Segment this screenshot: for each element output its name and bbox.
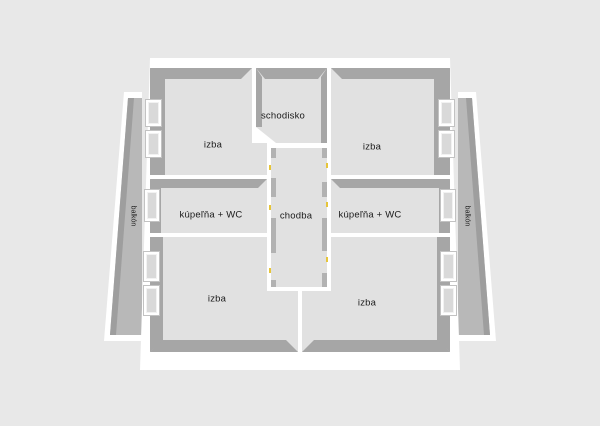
floorplan-canvas: balkón balkón [0, 0, 600, 426]
door-hinge-icon [326, 163, 328, 168]
room-label-izba-top-right: izba [363, 142, 381, 153]
wall-shade [150, 68, 252, 79]
wall-shade [331, 179, 450, 188]
corridor-wall-segment [322, 273, 327, 287]
corridor-wall-segment [271, 178, 276, 197]
window [438, 130, 455, 158]
room-label-kupelna-wc-right: kúpeľňa + WC [339, 210, 402, 221]
window-pane [147, 192, 157, 219]
window-pane [441, 102, 452, 124]
window [145, 99, 162, 127]
door-hinge-icon [269, 205, 271, 210]
room-schodisko [256, 68, 327, 143]
corridor-wall-segment [322, 148, 327, 158]
window-pane [146, 288, 157, 313]
wall-shade [302, 340, 450, 352]
room-izba-top-left [150, 68, 267, 175]
corridor-wall-segment [271, 148, 276, 158]
room-label-izba-bottom-right: izba [358, 298, 376, 309]
window-pane [443, 192, 453, 219]
window [143, 285, 160, 316]
wall-shade [150, 179, 267, 188]
wall-shade [256, 68, 327, 79]
window [143, 251, 160, 282]
balcony-right: balkón [458, 92, 496, 341]
door-hinge-icon [326, 202, 328, 207]
window [440, 285, 457, 316]
window-pane [148, 102, 159, 124]
window-pane [443, 254, 454, 279]
window [440, 189, 456, 222]
corridor-wall-segment [271, 218, 276, 253]
balcony-right-label: balkón [464, 206, 471, 227]
room-label-kupelna-wc-left: kúpeľňa + WC [180, 210, 243, 221]
room-label-izba-top-left: izba [204, 140, 222, 151]
wall-shade [150, 340, 298, 352]
wall-shade [331, 68, 450, 79]
window [144, 189, 160, 222]
window-pane [441, 133, 452, 155]
door-hinge-icon [269, 165, 271, 170]
window-pane [148, 133, 159, 155]
balcony-left: balkón [104, 92, 142, 341]
window-pane [146, 254, 157, 279]
room-label-izba-bottom-left: izba [208, 294, 226, 305]
wall-shade [321, 68, 327, 143]
corridor-wall-segment [271, 280, 276, 287]
room-kupelna-wc-left [150, 179, 267, 233]
door-hinge-icon [269, 268, 271, 273]
window-pane [443, 288, 454, 313]
corridor-wall-segment [322, 182, 327, 197]
room-kupelna-wc-right [331, 179, 450, 233]
room-label-schodisko: schodisko [261, 111, 305, 122]
window [145, 130, 162, 158]
room-label-chodba: chodba [280, 211, 312, 222]
corridor-wall-segment [322, 218, 327, 251]
window [438, 99, 455, 127]
door-hinge-icon [326, 257, 328, 262]
balcony-left-label: balkón [130, 206, 137, 227]
window [440, 251, 457, 282]
room-izba-top-right [331, 68, 450, 175]
